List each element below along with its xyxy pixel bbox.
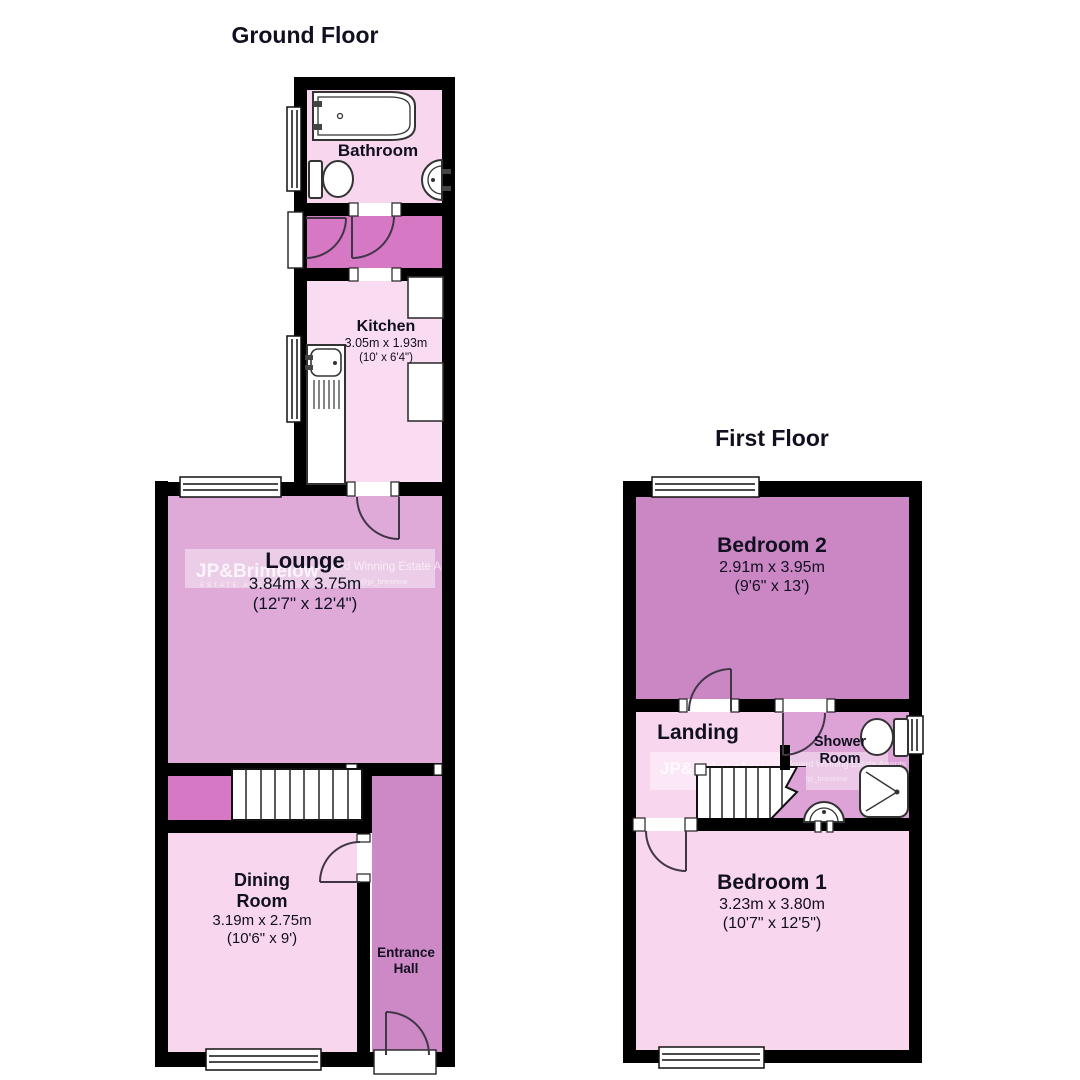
bedroom2-window-icon <box>652 477 759 497</box>
bedroom2-floor <box>636 497 909 699</box>
room-dims-imperial: (9'6" x 13') <box>717 577 827 596</box>
lounge-window-icon <box>180 477 281 497</box>
wall <box>401 203 442 216</box>
bedroom1-window-icon <box>659 1047 764 1068</box>
shower-room-label: Shower Room <box>811 734 869 768</box>
wall <box>623 481 636 1062</box>
shower-tray-icon <box>860 766 908 817</box>
lounge-label: Lounge 3.84m x 3.75m (12'7" x 12'4") <box>249 548 361 614</box>
wall <box>909 481 922 1062</box>
rear-lobby-floor <box>307 216 442 268</box>
dining-window-icon <box>206 1049 321 1070</box>
room-dims-imperial: (10' x 6'4") <box>345 351 428 365</box>
bath-icon <box>313 92 415 140</box>
wall <box>294 77 455 90</box>
floorplan-canvas: JP&Brimelow ESTATE AGENTS Award Winning … <box>0 0 1080 1080</box>
room-name: Shower Room <box>811 734 869 768</box>
bathroom-label: Bathroom <box>338 141 418 161</box>
kitchen-label: Kitchen 3.05m x 1.93m (10' x 6'4") <box>345 317 428 365</box>
room-dims-metric: 3.84m x 3.75m <box>249 574 361 594</box>
floorplan-drawing: JP&Brimelow ESTATE AGENTS Award Winning … <box>0 0 1080 1080</box>
entrance-hall-label: Entrance Hall <box>375 945 437 978</box>
room-dims-imperial: (10'6" x 9') <box>212 930 311 948</box>
wall <box>399 482 455 496</box>
stairs-icon <box>232 769 362 820</box>
room-name: Dining Room <box>227 870 297 912</box>
bedroom2-label: Bedroom 2 2.91m x 3.95m (9'6" x 13') <box>717 533 827 596</box>
stair-side-floor <box>168 776 232 820</box>
room-dims-metric: 3.05m x 1.93m <box>345 336 428 351</box>
room-name: Bedroom 1 <box>717 870 827 895</box>
toilet-icon <box>309 161 353 198</box>
room-name: Bedroom 2 <box>717 533 827 558</box>
room-dims-metric: 2.91m x 3.95m <box>717 558 827 577</box>
room-dims-metric: 3.19m x 2.75m <box>212 912 311 930</box>
stairs-icon <box>695 764 806 822</box>
wall <box>155 481 168 1067</box>
watermark-handle: @jp_brimelow <box>800 774 848 783</box>
room-dims-metric: 3.23m x 3.80m <box>717 895 827 914</box>
bathroom-window-icon <box>287 107 301 191</box>
wall <box>442 77 455 1067</box>
wall <box>155 820 372 833</box>
dining-room-label: Dining Room 3.19m x 2.75m (10'6" x 9') <box>212 870 311 948</box>
landing-label: Landing <box>657 720 739 745</box>
ground-floor-title: Ground Floor <box>232 22 379 48</box>
wall <box>307 203 349 216</box>
wall <box>307 268 349 281</box>
room-name: Lounge <box>249 548 361 574</box>
entrance-hall-floor <box>372 776 442 1052</box>
room-dims-imperial: (10'7" x 12'5") <box>717 914 827 933</box>
room-name: Landing <box>657 720 739 745</box>
wall <box>827 699 909 712</box>
room-name: Kitchen <box>345 317 428 336</box>
shower-window-icon <box>907 716 923 754</box>
room-name: Bathroom <box>338 141 418 161</box>
wall <box>780 745 790 770</box>
bedroom1-floor <box>636 831 909 1050</box>
lounge-floor <box>168 496 442 763</box>
wall <box>685 818 909 831</box>
kitchen-sink-icon <box>305 345 345 484</box>
first-floor-title: First Floor <box>715 425 829 451</box>
bedroom1-label: Bedroom 1 3.23m x 3.80m (10'7" x 12'5") <box>717 870 827 933</box>
room-name: Entrance Hall <box>375 945 437 977</box>
kitchen-window-icon <box>287 336 301 422</box>
wall <box>357 882 370 1052</box>
watermark-handle: @jp_brimelow <box>360 577 408 586</box>
room-dims-imperial: (12'7" x 12'4") <box>249 594 361 614</box>
